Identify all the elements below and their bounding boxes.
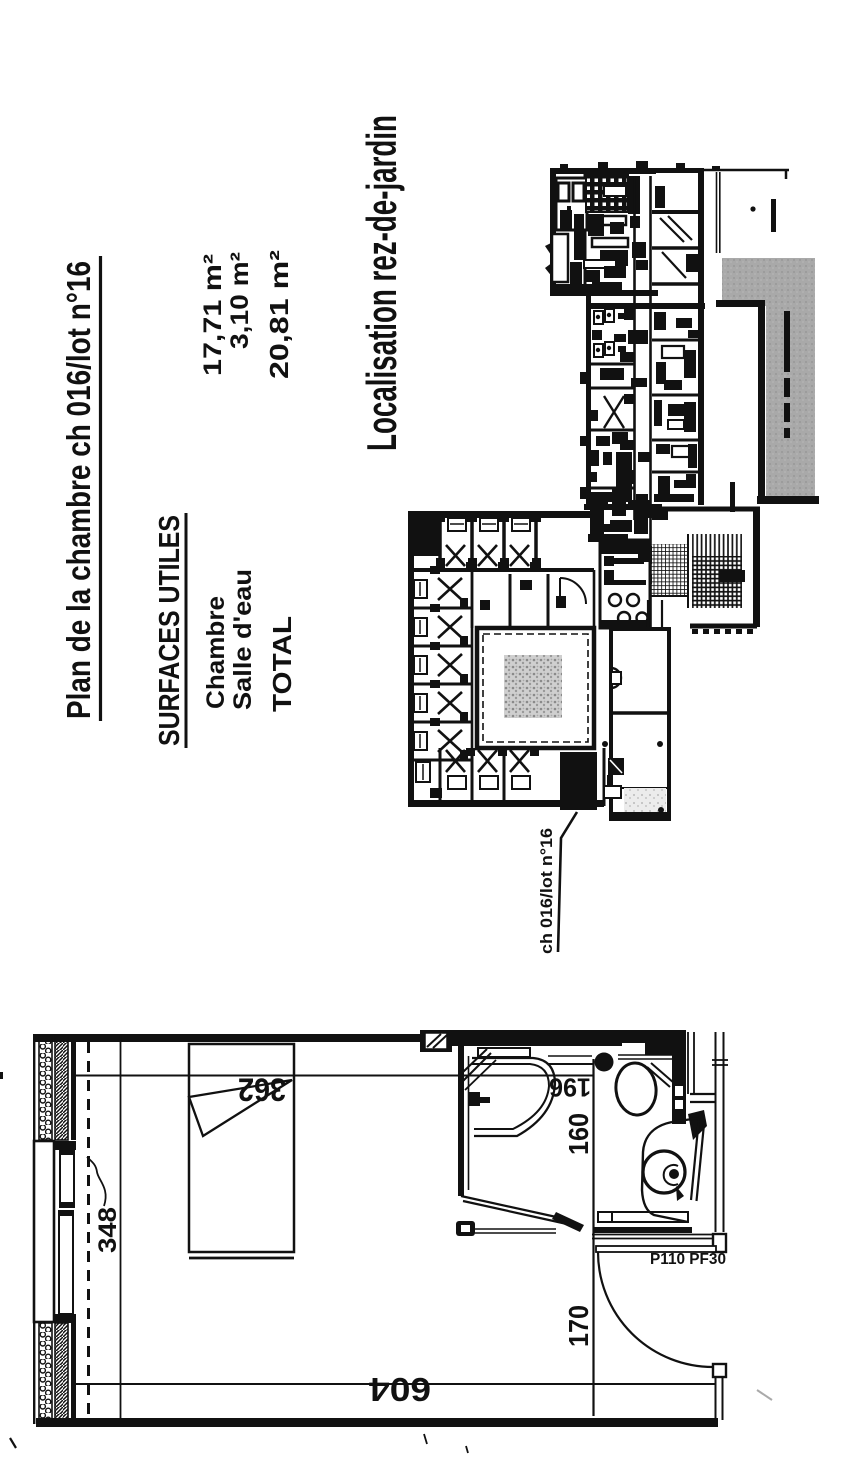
svg-text:3,10 m²: 3,10 m² [226,252,254,349]
svg-text:ch 016/lot n°16: ch 016/lot n°16 [538,828,556,954]
svg-text:20,81 m²: 20,81 m² [264,250,294,379]
svg-text:348: 348 [94,1207,122,1253]
svg-text:TOTAL: TOTAL [267,616,297,712]
svg-text:196: 196 [549,1073,591,1103]
svg-text:170: 170 [563,1305,594,1347]
svg-text:160: 160 [563,1113,594,1155]
svg-text:362: 362 [238,1071,286,1107]
svg-text:604: 604 [368,1371,431,1408]
svg-text:Salle d'eau: Salle d'eau [229,569,257,710]
svg-text:P110 PF30: P110 PF30 [650,1251,726,1268]
svg-text:17,71 m²: 17,71 m² [199,254,227,376]
svg-text:SURFACES UTILES: SURFACES UTILES [154,515,186,746]
svg-text:Plan de la chambre ch 016/lot: Plan de la chambre ch 016/lot n°16 [60,261,97,719]
svg-text:Localisation rez-de-jardin: Localisation rez-de-jardin [358,115,405,451]
svg-text:Chambre: Chambre [202,596,230,709]
